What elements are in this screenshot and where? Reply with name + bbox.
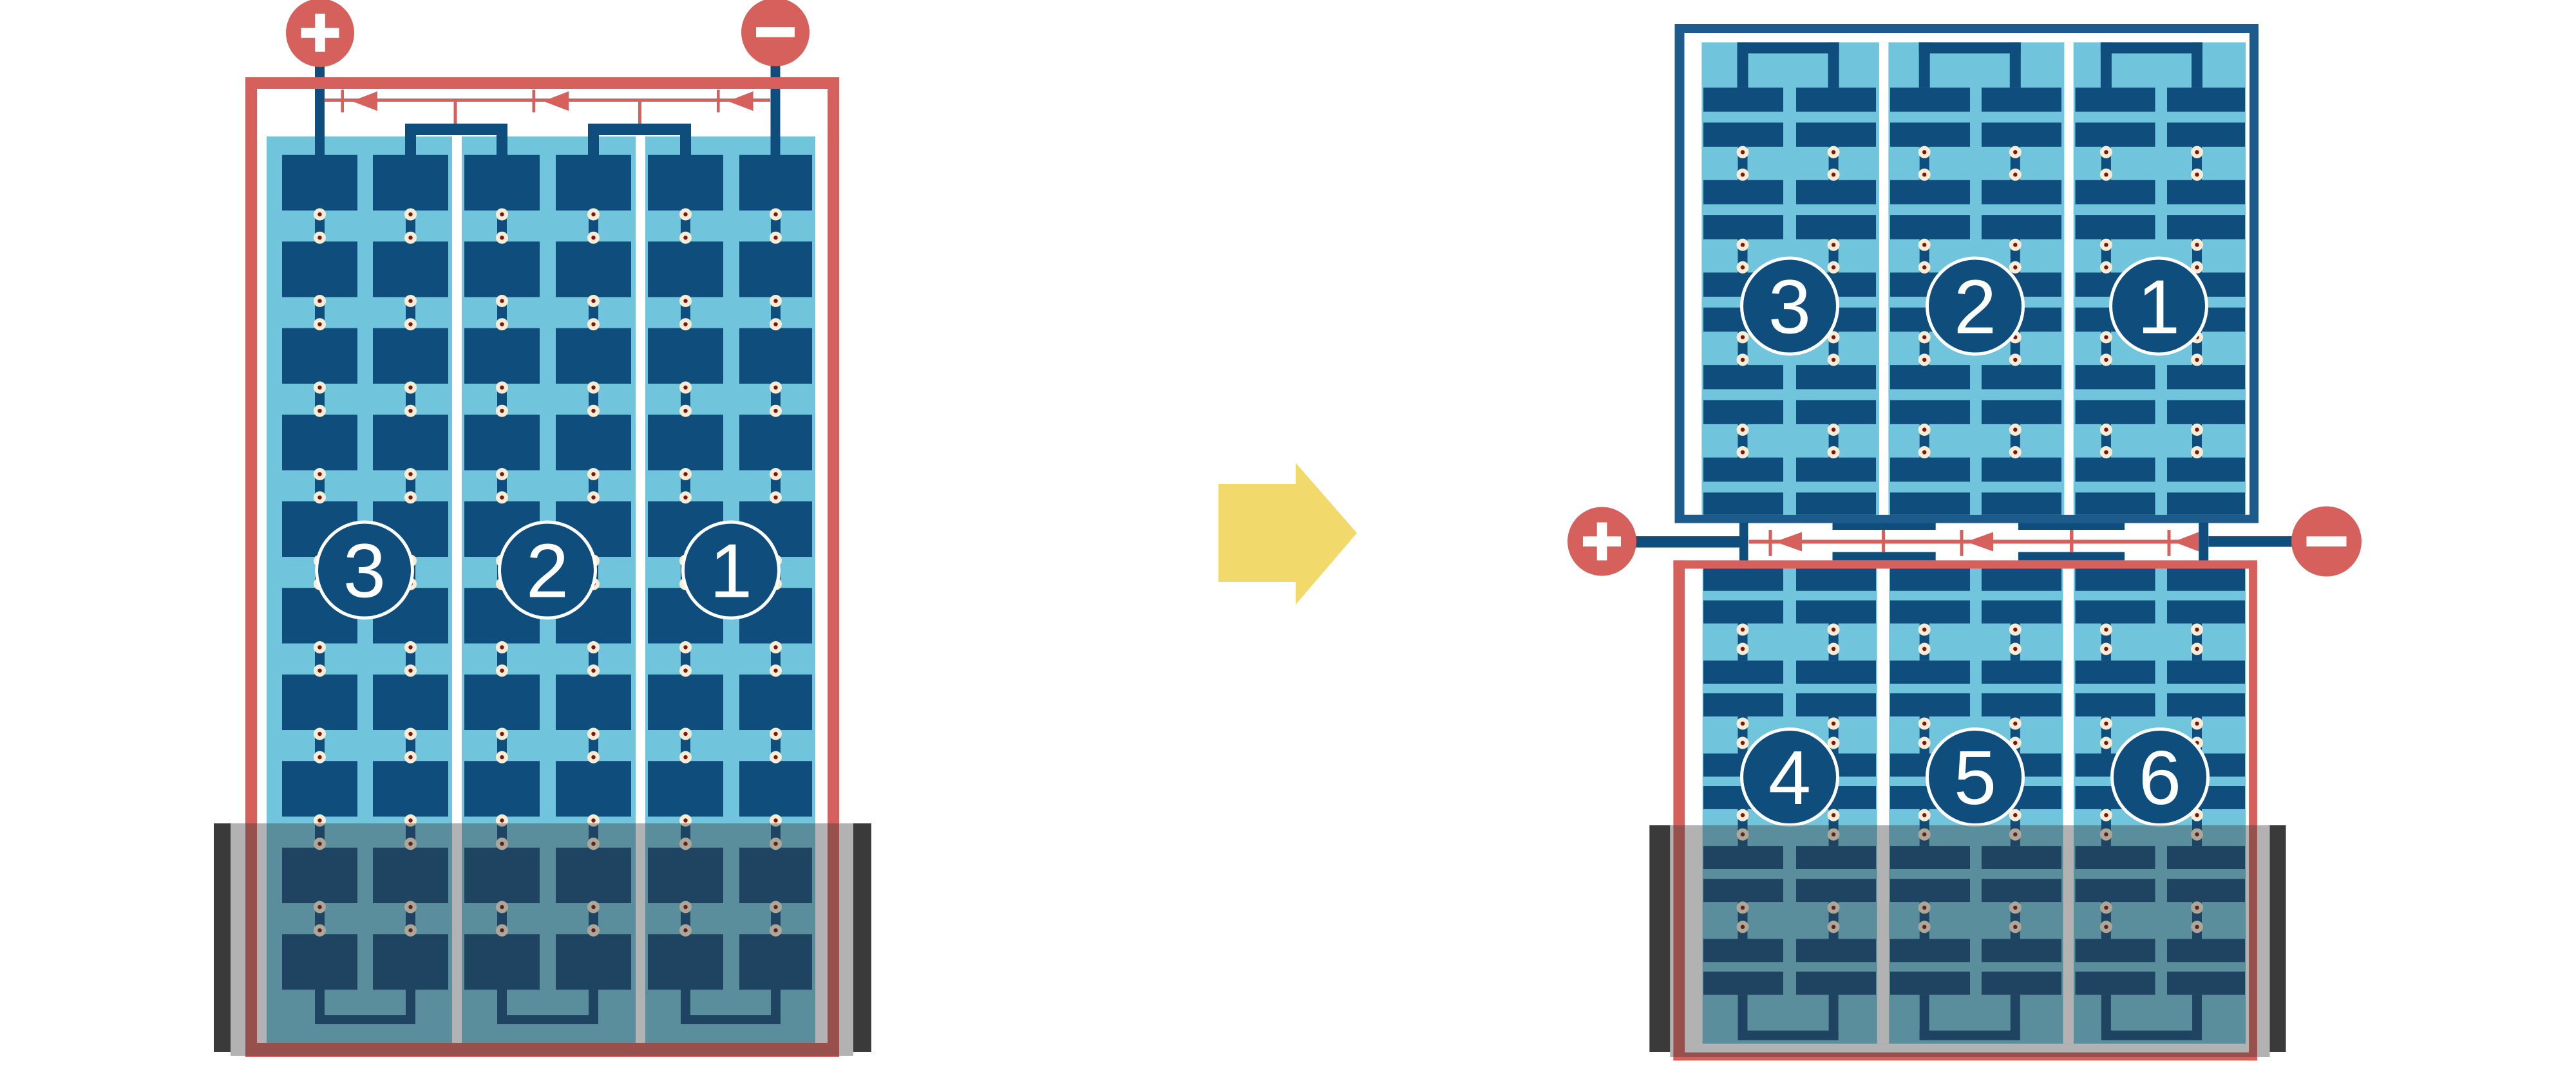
svg-text:3: 3: [343, 529, 386, 614]
svg-text:1: 1: [2137, 265, 2180, 350]
svg-text:1: 1: [710, 529, 752, 614]
svg-text:3: 3: [1768, 265, 1811, 350]
svg-text:2: 2: [1954, 265, 1996, 350]
svg-text:6: 6: [2139, 735, 2181, 821]
svg-text:5: 5: [1954, 735, 1996, 821]
svg-text:4: 4: [1768, 735, 1811, 821]
svg-text:2: 2: [526, 529, 569, 614]
